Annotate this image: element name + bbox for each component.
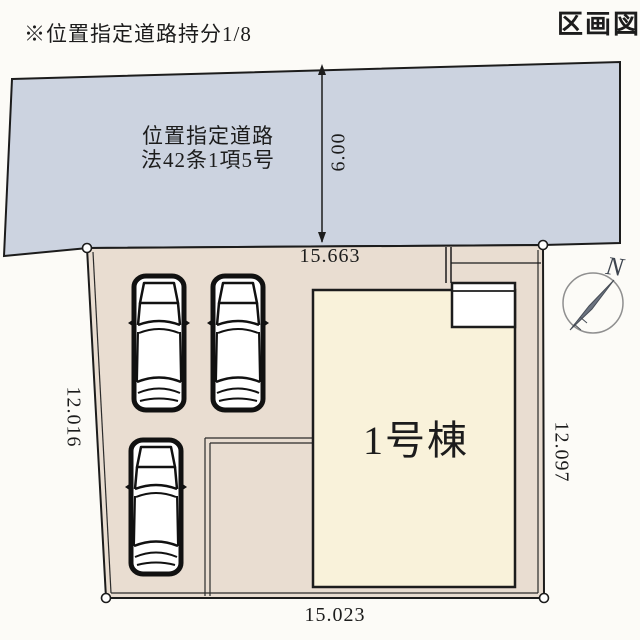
site-plan-drawing [0, 0, 640, 640]
plot-dim-right-label: 12.097 [550, 422, 573, 483]
car-icon [125, 440, 187, 574]
site-plan-page: ※位置指定道路持分1/8 区画図 位置指定道路 法42条1項5号 6.00 15… [0, 0, 640, 640]
entrance-porch [452, 283, 515, 327]
building-label: 1号棟 [350, 408, 482, 466]
drawing-title: 区画図 [557, 4, 640, 41]
road-share-note: ※位置指定道路持分1/8 [24, 18, 252, 48]
car-icon [207, 276, 269, 410]
road-name-label: 位置指定道路 法42条1項5号 [118, 124, 298, 172]
plot-dim-bottom-label: 15.023 [291, 604, 379, 627]
road-width-label: 6.00 [328, 133, 351, 172]
car-icon [128, 276, 190, 410]
road-name-line2: 法42条1項5号 [118, 148, 298, 172]
plot-dim-left-label: 12.016 [62, 387, 85, 448]
road-area [4, 62, 620, 256]
plot-dim-top-label: 15.663 [288, 245, 372, 268]
road-name-line1: 位置指定道路 [118, 124, 298, 148]
